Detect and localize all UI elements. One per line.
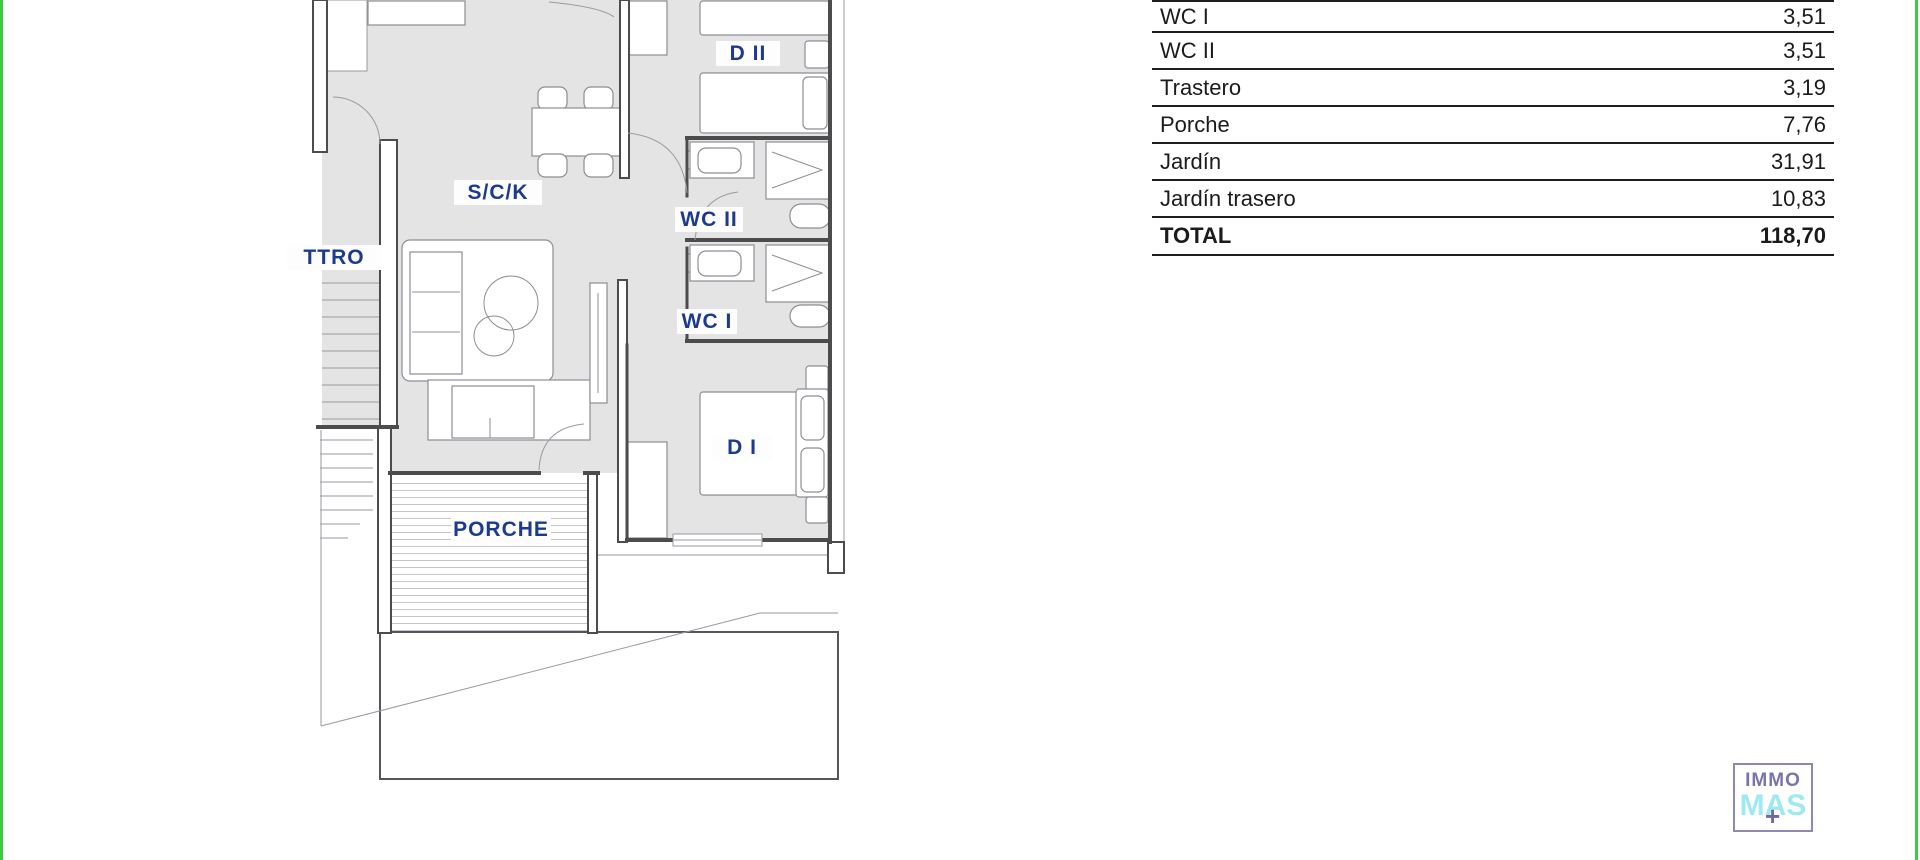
row-value: 3,51 bbox=[1783, 4, 1826, 30]
table-row: WC I 3,51 bbox=[1152, 0, 1834, 33]
chair bbox=[538, 87, 567, 110]
row-label: WC II bbox=[1160, 38, 1215, 64]
row-value: 7,76 bbox=[1783, 112, 1826, 138]
wardrobe bbox=[628, 442, 667, 538]
chair bbox=[538, 154, 567, 177]
window bbox=[673, 534, 762, 546]
room-label-d1: D I bbox=[727, 436, 757, 459]
screenshot-edge-right bbox=[1915, 0, 1918, 860]
sink-basin bbox=[698, 251, 741, 276]
row-label: Trastero bbox=[1160, 75, 1241, 101]
room-label-wc1: WC I bbox=[682, 310, 733, 333]
chair bbox=[584, 87, 613, 110]
row-value: 10,83 bbox=[1771, 186, 1826, 212]
nightstand bbox=[806, 366, 828, 390]
bed-single bbox=[700, 1, 830, 35]
room-label-sck: S/C/K bbox=[467, 181, 528, 204]
row-label: Jardín bbox=[1160, 149, 1221, 175]
table-row: Porche 7,76 bbox=[1152, 107, 1834, 144]
pillow bbox=[801, 448, 824, 492]
entry-notch bbox=[322, 0, 367, 71]
dining-table bbox=[532, 108, 620, 156]
toilet bbox=[790, 204, 830, 228]
hall-closet bbox=[629, 1, 667, 55]
room-label-wc2: WC II bbox=[680, 208, 738, 231]
areas-table: WC I 3,51 WC II 3,51 Trastero 3,19 Porch… bbox=[1152, 0, 1834, 256]
sofa-cushions bbox=[410, 252, 462, 374]
nightstand bbox=[805, 41, 829, 68]
row-value: 3,51 bbox=[1783, 38, 1826, 64]
sink-basin bbox=[698, 148, 741, 173]
row-label: Jardín trasero bbox=[1160, 186, 1296, 212]
exterior-steps bbox=[320, 440, 373, 538]
room-label-d2: D II bbox=[730, 42, 767, 65]
toilet bbox=[790, 305, 830, 327]
chair bbox=[584, 154, 613, 177]
pillow bbox=[803, 77, 827, 129]
logo-line1: IMMO bbox=[1735, 772, 1811, 790]
row-label: WC I bbox=[1160, 4, 1209, 30]
row-value: 31,91 bbox=[1771, 149, 1826, 175]
floor-plan-svg: D II S/C/K TTRO WC II WC I D I PORCHE bbox=[0, 0, 960, 860]
immo-mas-logo: IMMO MAS + bbox=[1733, 763, 1813, 832]
table-row: Jardín trasero 10,83 bbox=[1152, 181, 1834, 218]
room-label-porche: PORCHE bbox=[453, 518, 549, 541]
table-row: WC II 3,51 bbox=[1152, 33, 1834, 70]
total-label: TOTAL bbox=[1160, 223, 1231, 249]
logo-plus-icon: + bbox=[1765, 803, 1780, 829]
nightstand bbox=[806, 497, 828, 523]
row-value: 3,19 bbox=[1783, 75, 1826, 101]
table-row-total: TOTAL 118,70 bbox=[1152, 218, 1834, 256]
room-label-ttro: TTRO bbox=[303, 246, 364, 269]
pillow bbox=[801, 396, 824, 440]
porch-deck bbox=[392, 480, 588, 632]
garden-rect bbox=[380, 632, 838, 779]
row-label: Porche bbox=[1160, 112, 1230, 138]
total-value: 118,70 bbox=[1760, 223, 1826, 249]
table-row: Trastero 3,19 bbox=[1152, 70, 1834, 107]
kitchen-counter bbox=[368, 1, 465, 25]
table-row: Jardín 31,91 bbox=[1152, 144, 1834, 181]
